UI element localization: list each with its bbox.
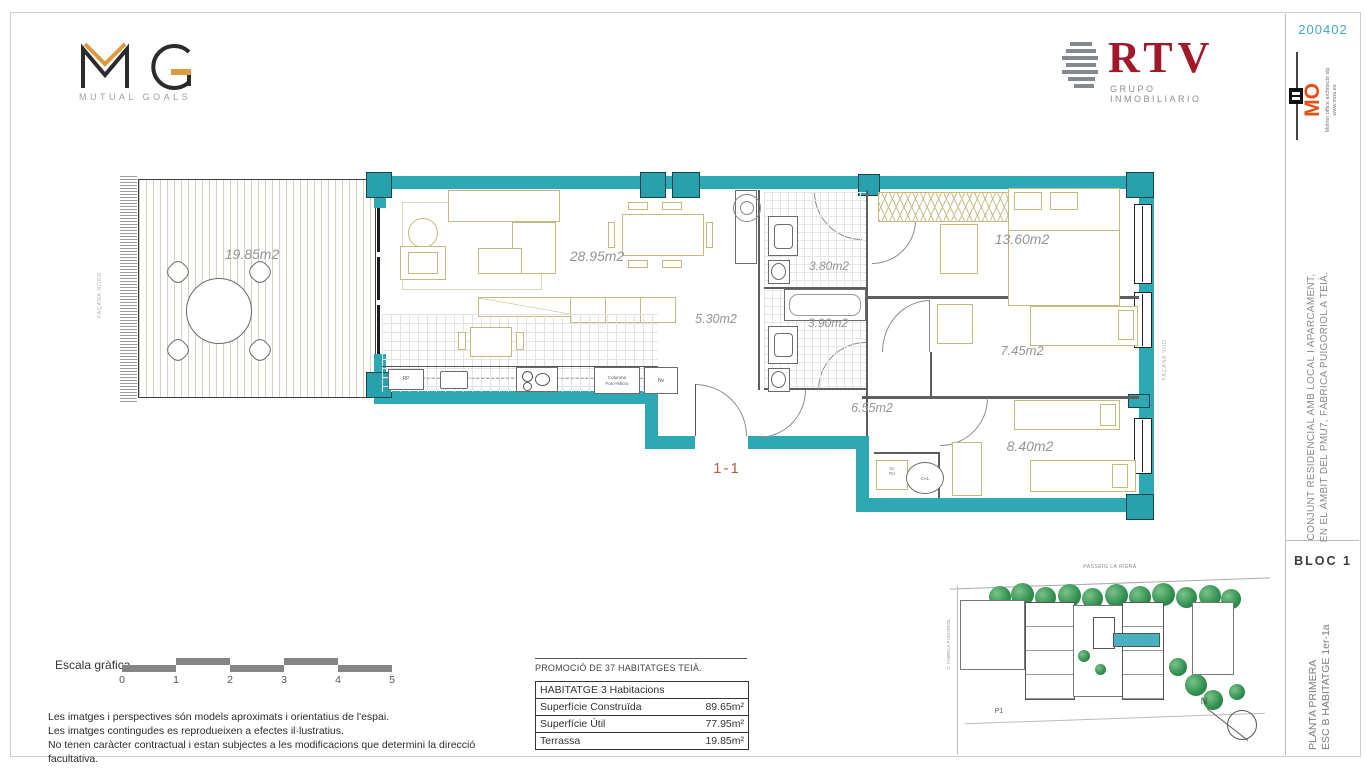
utility-box: Sc Rd <box>876 460 908 490</box>
room-label-bath2: 3.90m2 <box>783 316 873 330</box>
tree-icon <box>1078 650 1090 662</box>
partition <box>874 452 940 454</box>
mo-logo: MO Molner office architects slp www.moa.… <box>1286 48 1358 158</box>
mo-logo-text: MO <box>1301 75 1325 125</box>
wardrobe-box <box>952 442 982 496</box>
wardrobe <box>878 192 1010 222</box>
fridge-label: Nv <box>645 378 677 384</box>
desk <box>937 304 973 344</box>
scalebar-tick: 5 <box>382 674 402 686</box>
mg-logo-tagline: MUTUAL GOALS <box>79 92 191 102</box>
mo-firm-web: www.moa.es <box>1332 45 1339 155</box>
kitchen-column-box: Columna Forn+Micro <box>594 367 640 394</box>
cooktop <box>516 367 558 392</box>
kitchen-island <box>470 327 512 357</box>
room-label-bedroom-main: 13.60m2 <box>972 231 1072 247</box>
road-line <box>957 586 958 754</box>
door-leaf <box>929 300 930 352</box>
pillow <box>1100 404 1116 426</box>
boiler-label: CAL <box>907 476 943 481</box>
sofa <box>448 190 560 222</box>
tree-icon <box>1229 684 1245 700</box>
mo-logo-firm: Molner office architects slp www.moa.es <box>1325 45 1341 155</box>
rtv-building-icon <box>1058 40 1104 92</box>
bath1-sink-basin <box>774 224 793 249</box>
site-building-right-wing <box>1122 602 1164 700</box>
tree-icon <box>1169 658 1187 676</box>
plan-title: PLANTA PRIMERA ESC B HABITATGE 1er-1a <box>1307 560 1335 750</box>
armchair <box>408 218 438 248</box>
unit-label: 1-1 <box>697 460 757 477</box>
room-label-terrace: 19.85m2 <box>202 246 302 262</box>
summary-row: Terrassa 19.85m² <box>536 733 748 749</box>
wall-pier <box>640 172 666 198</box>
room-label-living: 28.95m2 <box>547 248 647 264</box>
wall-entry-right <box>748 436 869 449</box>
pillow <box>1118 310 1134 340</box>
disclaimer-line2: Les imatges contingudes es reprodueixen … <box>48 724 518 738</box>
street-left-label: C. FÀBRICA PUIGORIOL <box>946 609 954 679</box>
dining-chair <box>662 260 682 268</box>
disclaimer-line3: No tenen caràcter contractual i estan su… <box>48 738 518 766</box>
tree-icon <box>1185 674 1207 696</box>
partition <box>866 190 868 436</box>
rtv-logo-tagline: GRUPO INMOBILIARIO <box>1110 84 1243 104</box>
glass-wall <box>377 208 380 354</box>
scalebar-tick: 3 <box>274 674 294 686</box>
promo-label: PROMOCIÓ DE 37 HABITATGES TEIÀ. <box>535 663 749 673</box>
entrance-door-leaf <box>695 384 696 436</box>
highlighted-unit <box>1113 633 1160 647</box>
sheet-code: 200402 <box>1288 22 1358 37</box>
room-label-kitchen: 5.30m2 <box>671 312 761 326</box>
summary-overline <box>535 658 747 659</box>
window <box>1134 418 1152 474</box>
summary-row-label: Superfície Útil <box>540 718 605 730</box>
scalebar-label: Escala gràfica <box>55 658 130 672</box>
summary-row-value: 77.95m² <box>705 718 744 730</box>
bath2-toilet-bowl <box>771 371 786 388</box>
pillow <box>1014 192 1042 210</box>
partition <box>862 396 1139 399</box>
bathtub-inner <box>789 294 861 316</box>
scalebar-tick: 1 <box>166 674 186 686</box>
kitchen-rp-label: RP <box>389 376 423 382</box>
wall-pier <box>1126 172 1154 198</box>
siteplan: PASSEIG LA RIERA C. FÀBRICA PUIGORIOL P1… <box>945 558 1275 754</box>
window-glazing <box>1142 294 1143 346</box>
summary-block: PROMOCIÓ DE 37 HABITATGES TEIÀ. HABITATG… <box>535 658 749 750</box>
scalebar-segment <box>122 665 176 672</box>
boiler: CAL <box>906 462 944 494</box>
scalebar-segment <box>338 665 392 672</box>
terrace-floor <box>138 179 376 398</box>
plan-title-line2: ESC B HABITATGE 1er-1a <box>1320 560 1333 750</box>
summary-row-label: Terrassa <box>540 735 580 747</box>
summary-table: HABITATGE 3 Habitacions Superfície Const… <box>535 681 749 750</box>
mg-logo: MUTUAL GOALS <box>75 36 275 106</box>
street-top-label: PASSEIG LA RIERA <box>1045 564 1175 570</box>
wall-pier <box>1126 494 1154 520</box>
summary-row-value: 89.65m² <box>705 701 744 713</box>
room-label-bedroom-3: 8.40m2 <box>980 438 1080 454</box>
summary-table-header: HABITATGE 3 Habitacions <box>536 682 748 699</box>
room-label-hall: 6.55m2 <box>827 401 917 415</box>
coffee-table <box>478 248 522 274</box>
summary-row: Superfície Construïda 89.65m² <box>536 699 748 716</box>
scalebar-tick: 4 <box>328 674 348 686</box>
rtv-logo-text: RTV <box>1108 32 1214 83</box>
wall-pier <box>366 172 392 198</box>
scalebar-tick: 2 <box>220 674 240 686</box>
glass-break <box>376 252 381 257</box>
kitchen-column-label: Columna Forn+Micro <box>595 375 639 386</box>
tree-icon <box>1095 664 1106 675</box>
scalebar: Escala gràfica 0 1 2 3 4 5 <box>48 652 408 690</box>
partition <box>758 190 760 390</box>
window-glazing <box>1142 206 1143 282</box>
p1-label: P1 <box>989 708 1009 715</box>
fridge-box: Nv <box>644 367 678 394</box>
site-pool <box>1093 617 1115 649</box>
partition <box>930 352 932 398</box>
dining-chair <box>706 222 713 248</box>
facade-south-label: FAÇANA SUD <box>1162 315 1174 405</box>
pillow <box>1050 192 1078 210</box>
wall-pier <box>672 172 700 198</box>
tv-unit-inner <box>408 252 438 274</box>
kitchen-rp-box: RP <box>388 369 424 390</box>
room-label-bedroom-2: 7.45m2 <box>972 343 1072 358</box>
window-glazing <box>1142 420 1143 472</box>
dining-chair <box>662 202 682 210</box>
scalebar-segment <box>230 665 284 672</box>
dining-chair <box>608 222 615 248</box>
north-label: N <box>1197 696 1211 706</box>
disclaimer: Les imatges i perspectives són models ap… <box>48 710 518 766</box>
window <box>1134 204 1152 284</box>
pillow <box>1112 464 1128 488</box>
drawing-sheet: MUTUAL GOALS RTV GRUPO INMOBILIARIO 2004… <box>0 0 1366 768</box>
kitchen-sink <box>440 371 468 389</box>
terrace-railing <box>120 176 137 402</box>
room-label-bath1: 3.80m2 <box>784 259 874 273</box>
scalebar-segment <box>176 658 230 665</box>
disclaimer-line1: Les imatges i perspectives són models ap… <box>48 710 518 724</box>
summary-row: Superfície Útil 77.95m² <box>536 716 748 733</box>
bath2-sink-basin <box>774 333 793 357</box>
kitchen-stool <box>516 332 524 350</box>
dining-chair <box>628 202 648 210</box>
kitchen-stool <box>458 332 466 350</box>
summary-row-label: Superfície Construïda <box>540 701 642 713</box>
rtv-logo: RTV GRUPO INMOBILIARIO <box>1058 40 1243 102</box>
utility-label-line2: Rd <box>877 471 907 476</box>
terrace-table <box>186 278 252 344</box>
mo-firm-name: Molner office architects slp <box>1325 45 1332 155</box>
scalebar-tick: 0 <box>112 674 132 686</box>
site-building-right <box>1192 602 1234 675</box>
plan-title-line1: PLANTA PRIMERA <box>1307 560 1320 750</box>
site-building-left-wing <box>1025 602 1075 700</box>
wall-bottom-bedrooms <box>856 498 1154 512</box>
glass-break <box>376 300 381 305</box>
ceiling-lamp-inner <box>740 201 754 215</box>
site-building-left <box>960 600 1025 670</box>
facade-north-label: FAÇANA NORD <box>97 250 109 340</box>
scalebar-segment <box>284 658 338 665</box>
mg-logo-icon <box>75 36 225 94</box>
summary-row-value: 19.85m² <box>705 735 744 747</box>
